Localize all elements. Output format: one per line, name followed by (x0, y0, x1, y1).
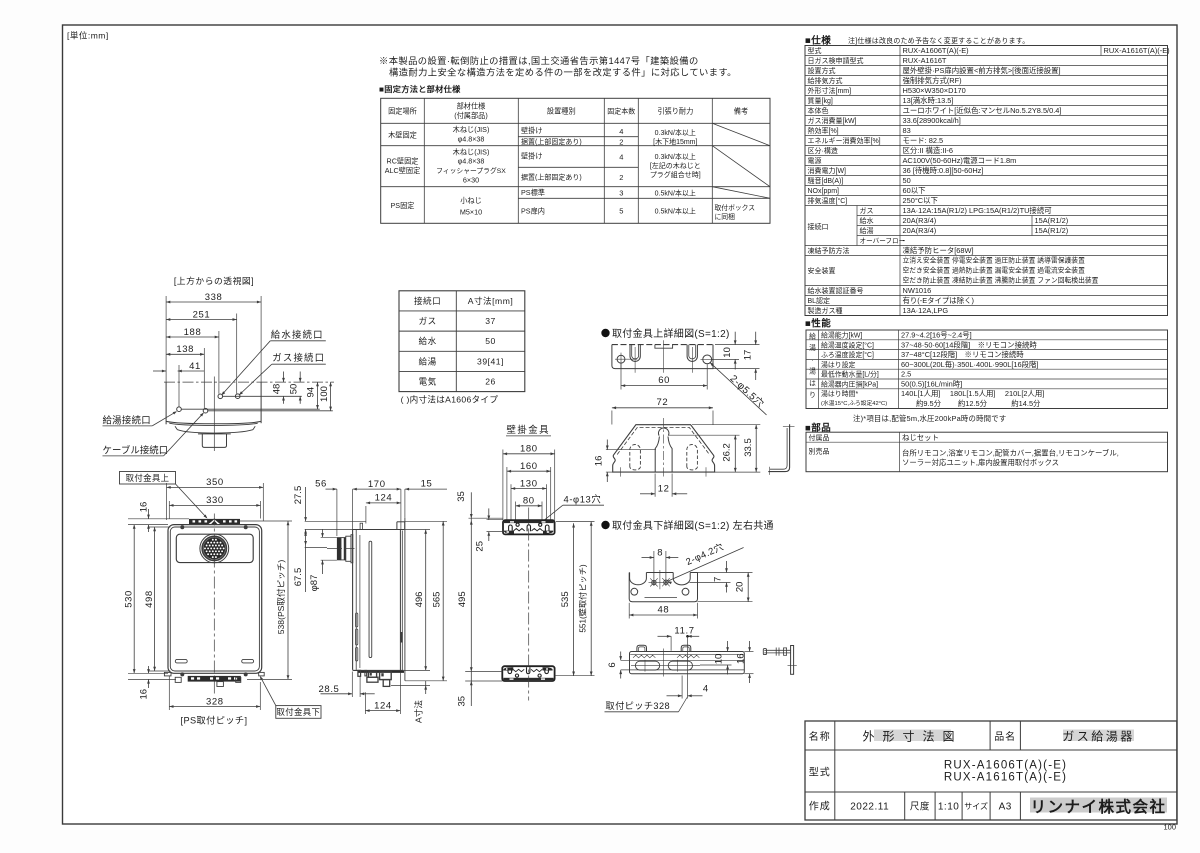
svg-text:36 [待機時:0.8][50-60Hz]: 36 [待機時:0.8][50-60Hz] (903, 166, 984, 175)
svg-text:据置(上部固定あり): 据置(上部固定あり) (521, 172, 582, 181)
svg-text:■性能: ■性能 (805, 318, 831, 330)
svg-text:56: 56 (315, 478, 327, 489)
svg-text:0.3kN/本以上: 0.3kN/本以上 (655, 152, 696, 161)
svg-text:83: 83 (903, 126, 911, 135)
svg-text:26: 26 (485, 377, 496, 387)
svg-text:電気: 電気 (418, 376, 436, 387)
svg-text:130: 130 (520, 478, 538, 489)
svg-text:給湯接続口: 給湯接続口 (103, 414, 151, 425)
svg-text:( )内寸法はA1606タイプ: ( )内寸法はA1606タイプ (401, 393, 499, 404)
svg-text:350: 350 (206, 477, 224, 488)
svg-text:本体色: 本体色 (808, 106, 829, 115)
svg-text:NW1016: NW1016 (903, 286, 932, 295)
svg-text:品名: 品名 (994, 730, 1016, 743)
svg-text:33.5: 33.5 (743, 438, 754, 457)
svg-text:A寸法[mm]: A寸法[mm] (468, 295, 514, 306)
svg-text:熱効率[%]: 熱効率[%] (808, 126, 839, 135)
svg-text:37~48°C[12段階] ※リモコン接続時: 37~48°C[12段階] ※リモコン接続時 (901, 350, 1024, 359)
svg-text:124: 124 (375, 493, 393, 504)
svg-text:ねじセット: ねじセット (902, 433, 939, 442)
svg-text:ガス給湯器: ガス給湯器 (1062, 730, 1135, 744)
svg-text:り: り (809, 391, 816, 399)
svg-text:2: 2 (619, 138, 623, 147)
svg-text:H530×W350×D170: H530×W350×D170 (903, 86, 966, 95)
svg-text:72: 72 (657, 397, 669, 408)
svg-text:質量[kg]: 質量[kg] (808, 96, 833, 105)
svg-text:20A(R3/4): 20A(R3/4) (903, 216, 937, 225)
svg-text:ガス接続口: ガス接続口 (272, 352, 325, 363)
svg-text:固定場所: 固定場所 (388, 107, 417, 116)
svg-text:8: 8 (657, 547, 662, 558)
svg-text:約9.5分 約12.5分 約14.5分: 約9.5分 約12.5分 約14.5分 (916, 399, 1041, 408)
svg-text:37: 37 (485, 316, 496, 326)
svg-text:電源: 電源 (808, 156, 822, 165)
svg-text:給湯温度設定[°C]: 給湯温度設定[°C] (821, 340, 874, 349)
svg-text:φ4.8×38: φ4.8×38 (458, 135, 485, 144)
svg-text:立消え安全装置 停電安全装置 過圧防止装置 誘導雷保護装置: 立消え安全装置 停電安全装置 過圧防止装置 誘導雷保護装置 (903, 256, 1086, 265)
svg-text:16: 16 (736, 653, 747, 664)
svg-text:取付金具下: 取付金具下 (276, 707, 320, 717)
svg-text:区分:II 構造:II-6: 区分:II 構造:II-6 (903, 146, 954, 155)
svg-text:サイズ: サイズ (964, 801, 988, 811)
svg-text:引張り耐力: 引張り耐力 (657, 107, 693, 116)
svg-text:RUX-A1616T: RUX-A1616T (903, 56, 947, 65)
svg-text:(水温15°C,ふろ設定42°C): (水温15°C,ふろ設定42°C) (821, 399, 887, 407)
svg-text:35: 35 (456, 491, 467, 502)
svg-text:498: 498 (144, 590, 155, 608)
svg-text:60: 60 (658, 375, 670, 386)
svg-text:注]仕様は改良のため予告なく変更することがあります。: 注]仕様は改良のため予告なく変更することがあります。 (848, 36, 1029, 45)
svg-text:100: 100 (319, 386, 330, 402)
svg-text:50: 50 (903, 176, 911, 185)
svg-text:PS扉内: PS扉内 (521, 207, 545, 216)
svg-text:[単位:mm]: [単位:mm] (67, 31, 109, 41)
svg-text:·: · (811, 357, 813, 364)
svg-text:2.5: 2.5 (901, 370, 911, 379)
svg-text:50(0.5)[16L/min時]: 50(0.5)[16L/min時] (901, 380, 962, 389)
svg-text:最低作動水量[L/分]: 最低作動水量[L/分] (821, 370, 879, 379)
svg-text:フィッシャープラグSX: フィッシャープラグSX (436, 166, 506, 175)
svg-text:給湯: 給湯 (860, 226, 874, 235)
svg-text:16: 16 (594, 456, 605, 467)
svg-text:328: 328 (206, 696, 224, 707)
svg-text:16: 16 (139, 689, 150, 700)
svg-text:給湯能力[kW]: 給湯能力[kW] (821, 331, 862, 340)
svg-text:ユーロホワイト[近似色:マンセルNo.5.2Y8.5/0.4: ユーロホワイト[近似色:マンセルNo.5.2Y8.5/0.4] (903, 106, 1062, 115)
svg-text:排気温度[°C]: 排気温度[°C] (808, 196, 848, 205)
svg-text:251: 251 (193, 309, 211, 320)
svg-text:3: 3 (619, 189, 623, 198)
svg-text:安全装置: 安全装置 (808, 266, 836, 275)
svg-text:ケーブル接続口: ケーブル接続口 (103, 445, 169, 456)
svg-text:AC100V(50-60Hz)電源コード1.8m: AC100V(50-60Hz)電源コード1.8m (903, 156, 1017, 165)
svg-text:33.6[28900kcal/h]: 33.6[28900kcal/h] (903, 116, 961, 125)
svg-text:16: 16 (139, 502, 150, 513)
svg-text:160: 160 (520, 461, 538, 472)
svg-text:湯: 湯 (809, 367, 816, 376)
svg-text:180: 180 (520, 444, 538, 455)
svg-text:日ガス検申請型式: 日ガス検申請型式 (808, 56, 864, 65)
svg-text:付属品: 付属品 (809, 433, 830, 442)
svg-text:48: 48 (657, 604, 669, 615)
svg-text:12: 12 (658, 483, 670, 494)
svg-text:強制排気方式(RF): 強制排気方式(RF) (903, 76, 962, 85)
svg-text:接続口: 接続口 (808, 222, 829, 231)
svg-text:RUX-A1606T(A)(-E): RUX-A1606T(A)(-E) (903, 46, 969, 55)
svg-text:2: 2 (619, 173, 623, 182)
svg-text:給水接続口: 給水接続口 (271, 329, 324, 340)
svg-text:37~48·50·60[14段階] ※リモコン接続時: 37~48·50·60[14段階] ※リモコン接続時 (901, 340, 1037, 349)
svg-text:木壁固定: 木壁固定 (388, 130, 417, 139)
svg-text:15A(R1/2): 15A(R1/2) (1035, 226, 1069, 235)
svg-text:木ねじ(JIS): 木ねじ(JIS) (453, 148, 490, 157)
svg-text:A3: A3 (999, 802, 1012, 813)
svg-text:PS標準: PS標準 (521, 188, 545, 197)
svg-text:外形寸法[mm]: 外形寸法[mm] (808, 86, 852, 95)
svg-text:100: 100 (1164, 823, 1177, 832)
svg-text:ソーラー対応ユニット,扉内設置用取付ボックス: ソーラー対応ユニット,扉内設置用取付ボックス (902, 458, 1059, 467)
svg-text:[上方からの透視図]: [上方からの透視図] (174, 275, 254, 286)
svg-text:[木下地15mm]: [木下地15mm] (653, 137, 697, 146)
svg-text:338: 338 (205, 292, 223, 303)
svg-text:給排気方式: 給排気方式 (808, 76, 843, 85)
svg-text:10: 10 (714, 654, 725, 665)
svg-text:15: 15 (421, 478, 433, 489)
svg-text:A寸法: A寸法 (413, 700, 424, 723)
svg-text:60~300L(20L毎)·350L·400L·990L[1: 60~300L(20L毎)·350L·400L·990L[16段階] (901, 360, 1038, 369)
svg-text:接続口: 接続口 (414, 295, 441, 306)
svg-text:モード: 82.5: モード: 82.5 (903, 136, 944, 145)
svg-text:据置(上部固定あり): 据置(上部固定あり) (521, 137, 582, 146)
svg-text:60以下: 60以下 (903, 186, 926, 195)
svg-text:消費電力[W]: 消費電力[W] (808, 166, 847, 175)
svg-text:設置種別: 設置種別 (547, 107, 576, 116)
svg-text:注)*項目は,配管5m,水圧200kPa時の時間です: 注)*項目は,配管5m,水圧200kPa時の時間です (853, 414, 1006, 423)
svg-text:15A(R1/2): 15A(R1/2) (1035, 216, 1069, 225)
svg-text:48: 48 (272, 384, 283, 395)
svg-text:作成: 作成 (809, 801, 831, 813)
svg-text:6: 6 (607, 662, 618, 667)
svg-text:67.5: 67.5 (293, 568, 304, 587)
svg-text:製造ガス種: 製造ガス種 (808, 306, 843, 315)
svg-text:取付金具上詳細図(S=1:2): 取付金具上詳細図(S=1:2) (612, 327, 730, 340)
svg-text:は: は (809, 379, 816, 387)
svg-text:RC壁固定: RC壁固定 (387, 157, 419, 166)
svg-text:木ねじ(JIS): 木ねじ(JIS) (453, 125, 490, 134)
svg-text:取付ボックス: 取付ボックス (715, 203, 756, 212)
svg-text:17: 17 (743, 350, 754, 361)
svg-text:ガス: ガス (860, 206, 874, 215)
svg-text:壁掛金具: 壁掛金具 (507, 424, 551, 435)
svg-text:2022.11: 2022.11 (850, 802, 889, 813)
svg-text:プラグ組合せ時]: プラグ組合せ時] (650, 170, 701, 179)
svg-text:※本製品の設置·転倒防止の措置は,国土交通省告示第1447号: ※本製品の設置·転倒防止の措置は,国土交通省告示第1447号「建築設備の (379, 55, 699, 66)
svg-text:取付金具下詳細図(S=1:2) 左右共通: 取付金具下詳細図(S=1:2) 左右共通 (612, 519, 774, 532)
svg-text:250°C以下: 250°C以下 (903, 196, 938, 205)
svg-text:25: 25 (474, 541, 485, 552)
svg-text:有り(-Eタイプは除く): 有り(-Eタイプは除く) (903, 296, 974, 305)
svg-text:50: 50 (288, 384, 299, 395)
svg-text:13A·12A,LPG: 13A·12A,LPG (903, 306, 949, 315)
svg-text:に同梱: に同梱 (715, 212, 736, 221)
svg-text:ガス: ガス (418, 316, 436, 326)
svg-text:凍結予防方法: 凍結予防方法 (808, 246, 850, 255)
svg-text:壁掛け: 壁掛け (521, 152, 543, 161)
svg-text:湯はり設定: 湯はり設定 (821, 360, 856, 369)
svg-text:給水装置認証番号: 給水装置認証番号 (808, 286, 864, 295)
svg-text:RUX-A1616T(A)(-E): RUX-A1616T(A)(-E) (1104, 46, 1170, 55)
svg-text:50: 50 (485, 336, 496, 346)
svg-text:538(PS取付ピッチ): 538(PS取付ピッチ) (276, 560, 286, 635)
svg-text:RUX-A1606T(A)(-E): RUX-A1606T(A)(-E) (944, 760, 1067, 772)
svg-text:170: 170 (368, 479, 386, 490)
svg-text:41: 41 (189, 361, 201, 372)
svg-text:給水: 給水 (418, 335, 436, 346)
svg-text:凍結予防ヒータ[68W]: 凍結予防ヒータ[68W] (903, 246, 974, 255)
svg-text:20A(R3/4): 20A(R3/4) (903, 226, 937, 235)
svg-text:小ねじ: 小ねじ (460, 196, 482, 205)
svg-text:[PS取付ピッチ]: [PS取付ピッチ] (181, 716, 248, 726)
svg-text:330: 330 (206, 495, 224, 506)
svg-text:給湯: 給湯 (418, 355, 436, 366)
svg-text:4: 4 (619, 152, 623, 161)
svg-text:530: 530 (123, 590, 134, 608)
svg-text:PS固定: PS固定 (391, 201, 415, 210)
svg-text:26.2: 26.2 (722, 443, 733, 462)
svg-text:138: 138 (176, 344, 194, 355)
svg-text:28.5: 28.5 (319, 684, 340, 695)
svg-text:124: 124 (374, 700, 392, 711)
svg-text:型式: 型式 (808, 46, 822, 55)
svg-text:[左記の木ねじと: [左記の木ねじと (650, 161, 701, 170)
svg-text:4-φ13穴: 4-φ13穴 (564, 494, 602, 505)
svg-text:496: 496 (414, 592, 425, 608)
svg-text:RUX-A1616T(A)(-E): RUX-A1616T(A)(-E) (944, 772, 1067, 784)
svg-text:39[41]: 39[41] (477, 356, 504, 366)
svg-text:区分·構造: 区分·構造 (808, 146, 838, 155)
svg-text:尺度: 尺度 (910, 801, 930, 813)
svg-text:取付金具上: 取付金具上 (126, 473, 170, 483)
svg-text:11.7: 11.7 (674, 626, 694, 637)
svg-text:20: 20 (735, 582, 746, 593)
svg-text:固定本数: 固定本数 (607, 107, 635, 116)
svg-text:551(壁取付ピッチ): 551(壁取付ピッチ) (577, 564, 587, 633)
svg-text:35: 35 (456, 696, 467, 707)
svg-text:(付属部品): (付属部品) (454, 111, 488, 120)
svg-text:BL認定: BL認定 (808, 296, 831, 305)
svg-text:オーバーフロー: オーバーフロー (860, 237, 906, 245)
svg-text:0.3kN/本以上: 0.3kN/本以上 (655, 128, 696, 137)
svg-text:495: 495 (457, 591, 468, 607)
svg-text:565: 565 (431, 592, 442, 608)
svg-text:φ87: φ87 (309, 575, 320, 592)
svg-text:1:10: 1:10 (938, 802, 959, 813)
svg-text:94: 94 (306, 387, 317, 398)
svg-text:6×30: 6×30 (463, 175, 479, 184)
svg-text:備考: 備考 (734, 107, 748, 116)
svg-text:NOx[ppm]: NOx[ppm] (808, 188, 840, 195)
svg-text:給水: 給水 (860, 216, 874, 225)
svg-text:80: 80 (523, 496, 535, 507)
svg-text:13[満水時:13.5]: 13[満水時:13.5] (903, 96, 954, 105)
svg-text:10: 10 (722, 347, 733, 358)
svg-text:■仕様: ■仕様 (805, 35, 831, 47)
svg-text:ALC壁固定: ALC壁固定 (385, 166, 421, 175)
svg-text:取付ピッチ328: 取付ピッチ328 (606, 701, 670, 711)
svg-text:140L[1人用] 180L[1.5人用] 210L[2: 140L[1人用] 180L[1.5人用] 210L[2人用] (901, 389, 1044, 398)
svg-text:13A·12A:15A(R1/2) LPG:15A(R1/2: 13A·12A:15A(R1/2) LPG:15A(R1/2)TU接続可 (903, 206, 1052, 215)
svg-text:構造耐力上安全な構造方法を定める件の一部を改定する件」に対応: 構造耐力上安全な構造方法を定める件の一部を改定する件」に対応しています。 (389, 67, 737, 78)
svg-text:給湯器内圧損[kPa]: 給湯器内圧損[kPa] (821, 380, 878, 389)
svg-text:別売品: 別売品 (809, 447, 830, 456)
svg-text:屋外壁掛·PS扉内設置<前方排気>[後面近接設置]: 屋外壁掛·PS扉内設置<前方排気>[後面近接設置] (903, 66, 1061, 75)
svg-text:7: 7 (712, 577, 723, 582)
svg-text:騒音[dB(A)]: 騒音[dB(A)] (808, 176, 844, 185)
svg-text:エネルギー消費効率[%]: エネルギー消費効率[%] (808, 136, 881, 145)
svg-text:給: 給 (809, 332, 816, 341)
svg-text:型式: 型式 (809, 766, 831, 779)
svg-text:5: 5 (619, 207, 623, 216)
svg-text:188: 188 (184, 327, 202, 338)
svg-text:0.5kN/本以上: 0.5kN/本以上 (655, 189, 696, 198)
svg-text:台所リモコン,浴室リモコン,配管カバー,据置台,リモコンケー: 台所リモコン,浴室リモコン,配管カバー,据置台,リモコンケーブル, (902, 449, 1119, 458)
svg-text:0.5kN/本以上: 0.5kN/本以上 (655, 207, 696, 216)
svg-text:27.5: 27.5 (293, 486, 304, 505)
svg-text:ふろ温度設定[°C]: ふろ温度設定[°C] (821, 350, 874, 359)
svg-text:■固定方法と部材仕様: ■固定方法と部材仕様 (379, 84, 461, 94)
svg-text:空だき防止装置 凍結防止装置 沸騰防止装置 ファン回転検出装: 空だき防止装置 凍結防止装置 沸騰防止装置 ファン回転検出装置 (903, 276, 1099, 285)
svg-text:リンナイ株式会社: リンナイ株式会社 (1030, 797, 1166, 816)
svg-text:壁掛け: 壁掛け (521, 126, 543, 135)
svg-text:外形寸法図: 外形寸法図 (862, 730, 962, 744)
svg-text:ガス消費量[kW]: ガス消費量[kW] (808, 116, 857, 125)
svg-text:4: 4 (619, 127, 623, 136)
svg-text:設置方式: 設置方式 (808, 66, 836, 75)
svg-text:φ4.8×38: φ4.8×38 (458, 157, 485, 166)
svg-text:名称: 名称 (809, 730, 831, 743)
svg-text:部材仕様: 部材仕様 (457, 101, 486, 110)
svg-text:27.9~4.2[16号~2.4号]: 27.9~4.2[16号~2.4号] (901, 331, 972, 340)
svg-text:535: 535 (560, 591, 571, 607)
svg-text:湯: 湯 (809, 343, 816, 352)
svg-text:M5×10: M5×10 (460, 208, 482, 217)
svg-text:湯はり時間*: 湯はり時間* (821, 389, 858, 398)
svg-text:空だき安全装置 過熱防止装置 漏電安全装置 過電流安全装置: 空だき安全装置 過熱防止装置 漏電安全装置 過電流安全装置 (903, 266, 1086, 275)
svg-text:4: 4 (703, 684, 708, 695)
